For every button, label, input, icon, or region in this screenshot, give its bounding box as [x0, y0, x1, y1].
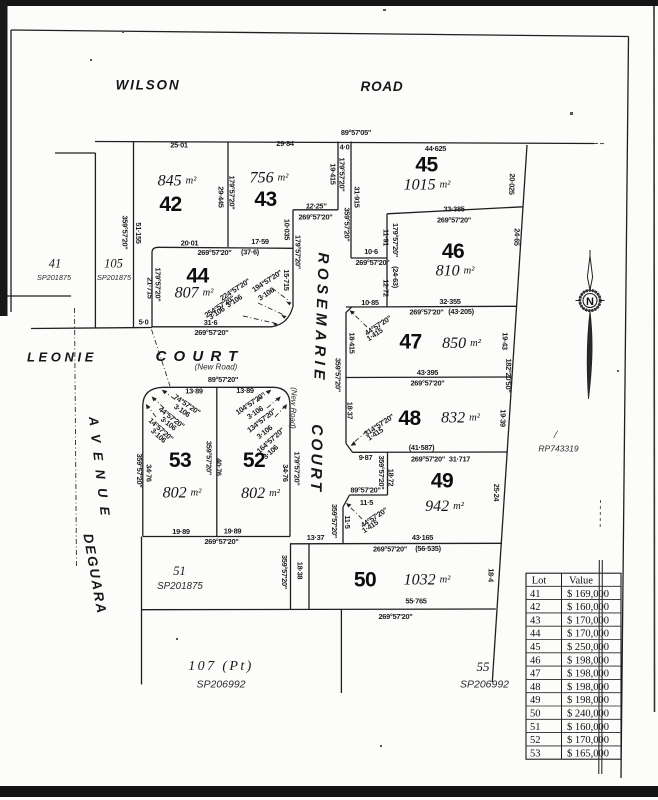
svg-text:18·4: 18·4 [486, 568, 495, 583]
svg-text:13·37: 13·37 [307, 533, 325, 542]
svg-text:(43·205): (43·205) [448, 307, 474, 316]
svg-text:(41·587): (41·587) [409, 443, 435, 452]
svg-text:50: 50 [354, 569, 376, 592]
svg-text:34·76: 34·76 [145, 464, 154, 482]
svg-text:$ 198,000: $ 198,000 [567, 682, 609, 693]
svg-text:41: 41 [530, 589, 541, 600]
svg-text:44: 44 [530, 629, 541, 640]
svg-text:18·415: 18·415 [348, 332, 357, 353]
svg-text:33·385: 33·385 [443, 204, 464, 213]
svg-text:269°57'20": 269°57'20" [437, 215, 472, 224]
svg-text:269°57'20": 269°57'20" [411, 454, 446, 463]
svg-text:43: 43 [530, 615, 541, 626]
svg-text:269°57'20": 269°57'20" [299, 213, 334, 222]
svg-text:43: 43 [254, 188, 276, 211]
svg-text:53: 53 [169, 449, 191, 472]
svg-text:179°57'20": 179°57'20" [338, 158, 347, 193]
svg-text:269°57'20": 269°57'20" [205, 537, 240, 546]
svg-text:47: 47 [530, 669, 541, 680]
svg-text:179°57'20": 179°57'20" [294, 235, 303, 270]
svg-text:20·01: 20·01 [181, 238, 199, 247]
svg-text:COURT: COURT [307, 424, 325, 494]
svg-text:19·89: 19·89 [224, 526, 242, 535]
svg-text:52: 52 [243, 449, 265, 472]
svg-text:46: 46 [442, 240, 464, 263]
svg-text:55·765: 55·765 [405, 596, 426, 605]
svg-text:48: 48 [530, 682, 541, 693]
svg-text:25·01: 25·01 [170, 141, 188, 150]
svg-text:19·89: 19·89 [172, 527, 190, 536]
svg-text:44·625: 44·625 [425, 144, 446, 153]
svg-text:29·84: 29·84 [276, 139, 295, 148]
svg-text:43·395: 43·395 [417, 368, 438, 377]
svg-text:105: 105 [104, 257, 123, 271]
svg-text:$ 170,000: $ 170,000 [567, 735, 609, 746]
svg-text:42: 42 [530, 602, 541, 613]
svg-text:359°57'20": 359°57'20" [334, 358, 343, 393]
svg-text:12·72: 12·72 [382, 279, 391, 297]
svg-text:31·717: 31·717 [449, 454, 470, 463]
svg-text:WILSON: WILSON [116, 78, 181, 93]
svg-text:45: 45 [415, 154, 438, 177]
svg-text:RP743319: RP743319 [538, 444, 578, 454]
svg-text:55: 55 [477, 659, 491, 674]
svg-text:107 (Pt): 107 (Pt) [188, 659, 253, 674]
svg-text:359°57'20": 359°57'20" [343, 208, 352, 243]
svg-text:359°57'20": 359°57'20" [121, 216, 130, 251]
svg-text:18·38: 18·38 [296, 562, 305, 580]
svg-text:51·155: 51·155 [134, 222, 143, 243]
svg-text:12·25": 12·25" [306, 201, 327, 210]
svg-text:43·165: 43·165 [412, 533, 433, 542]
svg-text:11·91: 11·91 [382, 229, 391, 246]
svg-text:$ 250,000: $ 250,000 [567, 642, 609, 653]
svg-text:359°57'20": 359°57'20" [205, 441, 214, 476]
svg-text:13·89: 13·89 [236, 386, 254, 395]
svg-text:359°57'20": 359°57'20" [135, 454, 144, 489]
svg-text:179°57'20": 179°57'20" [154, 268, 163, 303]
svg-text:269°57'20": 269°57'20" [195, 328, 230, 337]
svg-text:49: 49 [530, 695, 541, 706]
svg-text:20·025: 20·025 [507, 173, 517, 195]
svg-text:269°57'20": 269°57'20" [356, 258, 391, 267]
svg-text:9·87: 9·87 [359, 453, 373, 462]
svg-text:19·43: 19·43 [500, 332, 509, 350]
svg-text:21·715: 21·715 [146, 277, 155, 298]
svg-text:$ 170,000: $ 170,000 [567, 629, 609, 640]
svg-text:Lot: Lot [532, 576, 547, 587]
svg-text:179°57'20": 179°57'20" [293, 452, 302, 487]
svg-text:179°57'20": 179°57'20" [391, 223, 400, 258]
svg-text:45: 45 [530, 642, 541, 653]
svg-text:42: 42 [159, 193, 181, 216]
svg-text:ROAD: ROAD [361, 79, 404, 94]
svg-text:269°57'20": 269°57'20" [198, 248, 233, 257]
svg-text:18·72: 18·72 [387, 469, 396, 487]
svg-text:25·24: 25·24 [492, 484, 501, 503]
svg-text:51: 51 [530, 722, 541, 733]
svg-text:(37·6): (37·6) [241, 248, 260, 257]
svg-text:(24·63): (24·63) [391, 266, 400, 289]
svg-text:48: 48 [398, 407, 421, 430]
svg-text:$ 198,000: $ 198,000 [567, 655, 609, 666]
svg-text:11·5: 11·5 [360, 498, 373, 507]
svg-text:269°57'20": 269°57'20" [411, 378, 446, 387]
svg-text:89°57'20": 89°57'20" [208, 375, 239, 384]
svg-text:$ 165,000: $ 165,000 [567, 748, 609, 759]
svg-text:51: 51 [173, 564, 186, 578]
svg-text:34·76: 34·76 [281, 464, 290, 482]
svg-text:41: 41 [49, 257, 62, 271]
svg-text:269°57'20": 269°57'20" [379, 612, 414, 621]
svg-text:269°57'20": 269°57'20" [410, 308, 445, 317]
svg-text:179°57'20": 179°57'20" [228, 176, 237, 211]
svg-text:13·89: 13·89 [185, 387, 203, 396]
svg-text:SP201875: SP201875 [97, 273, 132, 282]
svg-text:52: 52 [530, 735, 541, 746]
svg-text:SP206992: SP206992 [196, 679, 245, 691]
svg-text:10·85: 10·85 [361, 298, 379, 307]
svg-text:SP201875: SP201875 [37, 273, 72, 282]
svg-text:46: 46 [530, 655, 541, 666]
svg-text:359°57'20": 359°57'20" [280, 555, 289, 590]
svg-text:SP206992: SP206992 [460, 679, 509, 691]
svg-text:15·715: 15·715 [282, 269, 291, 290]
svg-text:LEONIE: LEONIE [27, 350, 97, 365]
svg-text:359°57'20": 359°57'20" [330, 504, 339, 539]
svg-text:Value: Value [569, 576, 593, 587]
svg-text:53: 53 [530, 748, 541, 759]
svg-text:18·37: 18·37 [346, 402, 355, 420]
svg-text:40·76: 40·76 [215, 458, 224, 476]
svg-text:89°57'05": 89°57'05" [341, 128, 372, 137]
svg-text:182°20'50": 182°20'50" [504, 358, 514, 393]
svg-text:$ 240,000: $ 240,000 [567, 709, 609, 720]
svg-text:19·39: 19·39 [498, 409, 507, 427]
svg-text:5·0: 5·0 [139, 318, 149, 327]
svg-text:10·6: 10·6 [364, 247, 378, 256]
svg-text:$ 198,000: $ 198,000 [567, 695, 609, 706]
svg-text:49: 49 [431, 470, 453, 493]
svg-text:29·445: 29·445 [217, 186, 226, 207]
svg-text:10·035: 10·035 [283, 219, 292, 240]
svg-text:269°57'20": 269°57'20" [373, 544, 408, 553]
svg-text:11·5: 11·5 [343, 515, 352, 528]
svg-text:SP201875: SP201875 [157, 581, 203, 592]
svg-text:(New Road): (New Road) [195, 363, 238, 372]
svg-text:4·0: 4·0 [340, 143, 350, 152]
svg-text:17·59: 17·59 [251, 237, 269, 246]
svg-text:N: N [586, 296, 594, 308]
svg-text:32·355: 32·355 [439, 297, 460, 306]
svg-text:50: 50 [530, 709, 541, 720]
svg-text:$ 198,000: $ 198,000 [567, 669, 609, 680]
svg-text:19·415: 19·415 [329, 163, 338, 184]
svg-text:47: 47 [399, 331, 421, 354]
svg-text:$ 160,000: $ 160,000 [567, 722, 609, 733]
svg-text:89°57'20": 89°57'20" [350, 486, 381, 495]
svg-text:(56·535): (56·535) [415, 544, 441, 553]
svg-text:31·915: 31·915 [353, 186, 362, 207]
